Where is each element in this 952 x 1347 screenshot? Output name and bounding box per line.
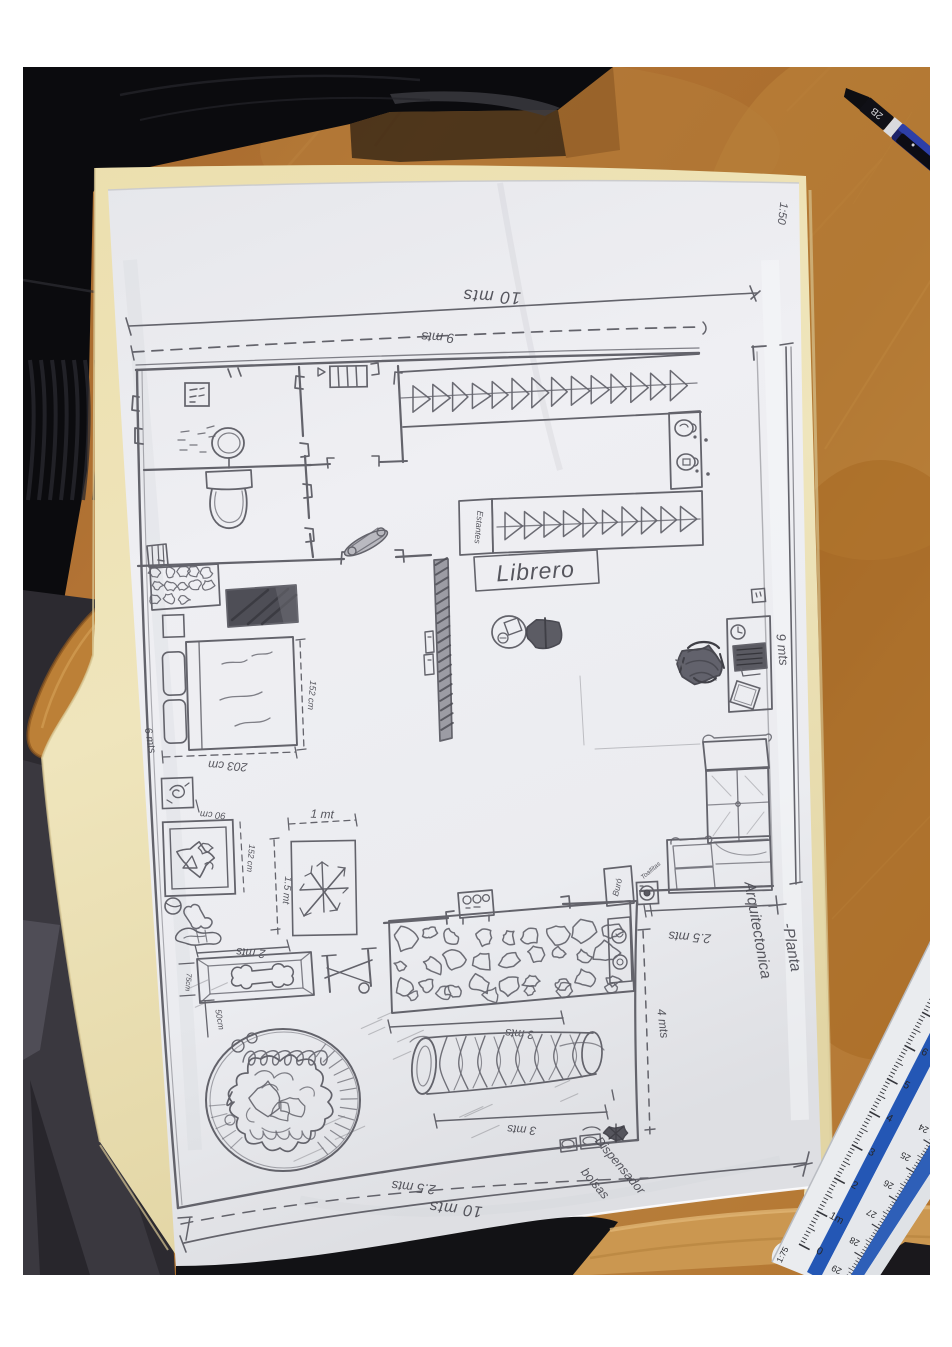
- svg-text:3 mts: 3 mts: [507, 1122, 537, 1138]
- svg-text:2 mts: 2 mts: [236, 945, 267, 961]
- svg-text:203 cm: 203 cm: [208, 758, 249, 775]
- svg-text:Librero: Librero: [495, 556, 575, 587]
- svg-text:3 mts: 3 mts: [505, 1026, 535, 1042]
- svg-text:90 cm: 90 cm: [199, 808, 226, 821]
- svg-text:2.5 mts: 2.5 mts: [667, 928, 712, 946]
- svg-text:1 mt: 1 mt: [310, 807, 334, 822]
- svg-text:10 mts: 10 mts: [462, 285, 521, 308]
- svg-text:9 mts: 9 mts: [421, 329, 455, 346]
